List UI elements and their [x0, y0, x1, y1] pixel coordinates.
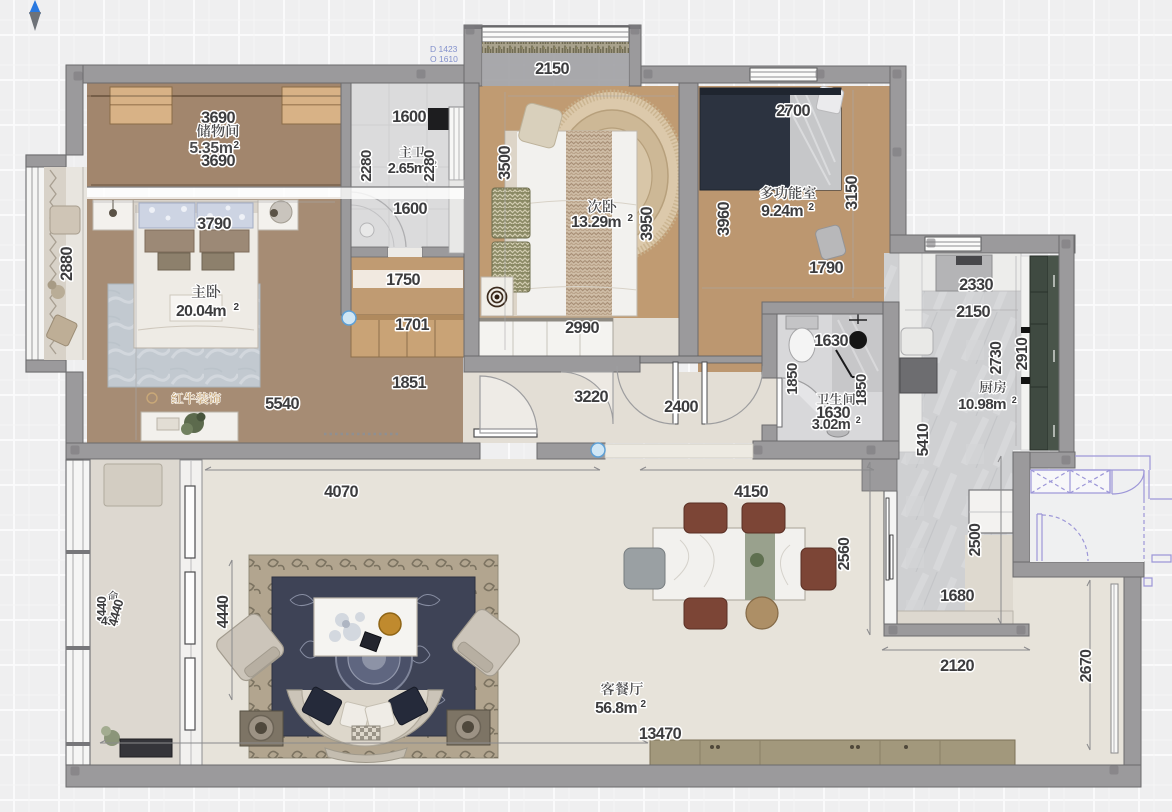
svg-text:3220: 3220: [574, 388, 608, 406]
svg-text:3790: 3790: [197, 215, 231, 233]
svg-text:3960: 3960: [715, 202, 733, 236]
svg-text:1701: 1701: [395, 316, 429, 334]
svg-text:2400: 2400: [664, 398, 698, 416]
svg-text:3500: 3500: [496, 146, 514, 180]
svg-text:1600: 1600: [393, 200, 427, 218]
svg-text:3950: 3950: [638, 207, 656, 241]
svg-text:2910: 2910: [1014, 337, 1031, 371]
svg-text:2280: 2280: [421, 150, 438, 182]
svg-text:1850: 1850: [784, 363, 801, 395]
svg-text:9.24m: 9.24m: [761, 203, 803, 220]
svg-text:4070: 4070: [324, 483, 358, 501]
svg-text:2150: 2150: [535, 60, 569, 78]
svg-text:4150: 4150: [734, 483, 768, 501]
svg-text:1851: 1851: [392, 374, 426, 392]
svg-text:20.04m: 20.04m: [176, 303, 227, 320]
svg-text:1600: 1600: [392, 108, 426, 126]
svg-text:3150: 3150: [843, 176, 861, 210]
svg-text:5.35m: 5.35m: [189, 140, 233, 157]
svg-text:1630: 1630: [814, 332, 848, 350]
svg-text:1750: 1750: [386, 271, 420, 289]
svg-text:2: 2: [1012, 395, 1017, 405]
svg-text:2280: 2280: [358, 150, 375, 182]
svg-text:2670: 2670: [1078, 649, 1095, 683]
svg-text:2: 2: [856, 415, 861, 425]
svg-text:3.02m: 3.02m: [812, 417, 851, 433]
svg-text:2120: 2120: [940, 657, 974, 675]
svg-text:10.98m: 10.98m: [958, 396, 1006, 413]
svg-text:2150: 2150: [956, 303, 990, 321]
svg-text:D 1423: D 1423: [430, 44, 458, 54]
svg-text:2730: 2730: [988, 341, 1005, 375]
svg-text:56.8m: 56.8m: [595, 700, 637, 717]
svg-text:4440: 4440: [215, 595, 232, 629]
svg-text:1680: 1680: [940, 587, 974, 605]
svg-text:2500: 2500: [967, 523, 984, 557]
svg-text:2880: 2880: [58, 247, 76, 281]
svg-text:O 1610: O 1610: [430, 54, 458, 64]
svg-text:5410: 5410: [915, 423, 932, 457]
svg-text:2560: 2560: [836, 537, 853, 571]
svg-text:5540: 5540: [265, 395, 299, 413]
svg-text:2330: 2330: [959, 276, 993, 294]
svg-text:2700: 2700: [776, 102, 810, 120]
svg-text:13.29m: 13.29m: [571, 214, 622, 231]
svg-text:13470: 13470: [639, 725, 682, 743]
svg-text:1790: 1790: [809, 259, 843, 277]
svg-text:2990: 2990: [565, 319, 599, 337]
